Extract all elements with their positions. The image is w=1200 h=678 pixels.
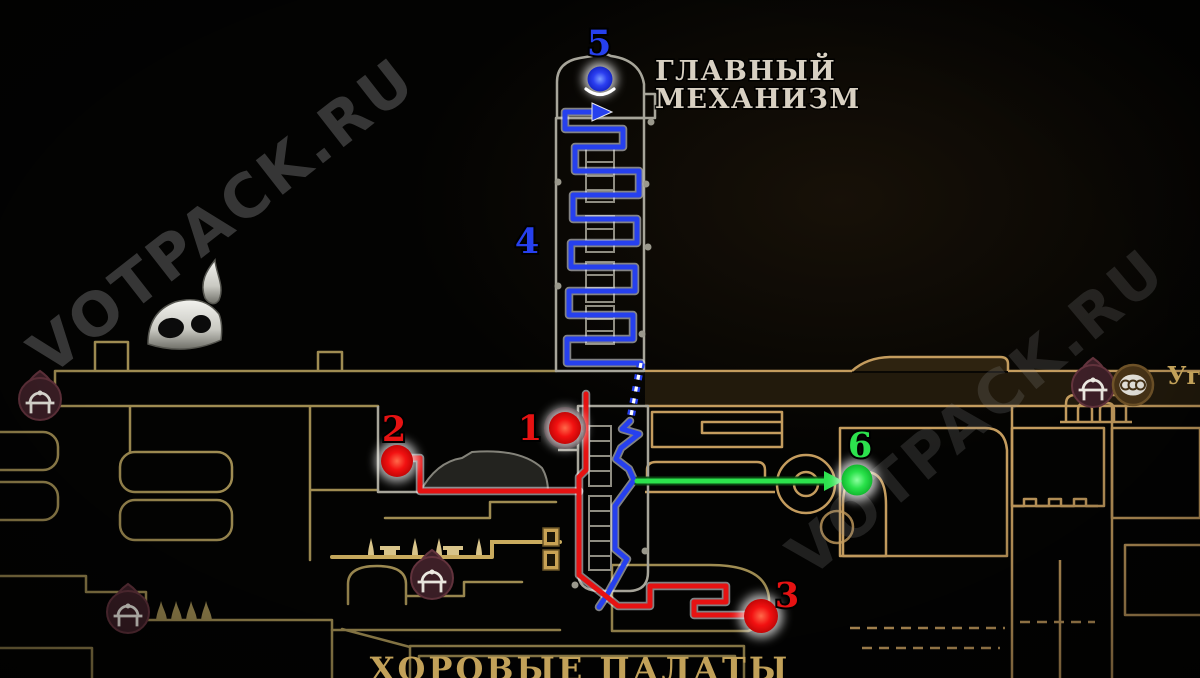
region-label-main-mechanism-line1: ГЛАВНЫЙ xyxy=(655,52,836,87)
region-label-right-edge: Уго xyxy=(1167,361,1200,390)
marker-label-6: 6 xyxy=(848,425,872,466)
game-map-screenshot: VOTPACK.RU VOTPACK.RU xyxy=(0,0,1200,678)
marker-dot-1 xyxy=(544,407,586,449)
marker-label-1: 1 xyxy=(518,408,542,449)
marker-label-4: 4 xyxy=(515,221,539,262)
marker-dot-5 xyxy=(583,62,617,96)
marker-label-5: 5 xyxy=(587,23,611,64)
region-label-main-mechanism-line2: МЕХАНИЗМ xyxy=(655,84,861,115)
marker-label-3: 3 xyxy=(775,575,799,616)
game-map: VOTPACK.RU VOTPACK.RU xyxy=(0,0,1200,678)
marker-label-2: 2 xyxy=(382,409,406,450)
region-label-choral-chambers: ХОРОВЫЕ ПАЛАТЫ xyxy=(370,650,791,678)
